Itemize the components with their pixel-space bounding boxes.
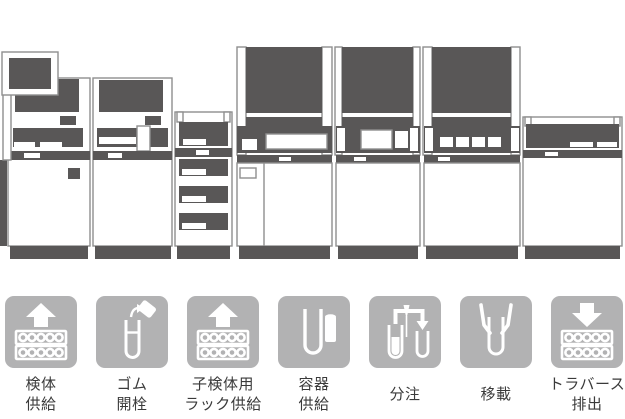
legend-item-child-rack-supply: 子検体用 ラック供給: [187, 296, 259, 417]
machine-line-illustration: [0, 0, 625, 270]
dispense-icon: [369, 296, 441, 368]
icon-label: 子検体用 ラック供給: [184, 373, 262, 417]
module-processor-1: [237, 47, 332, 259]
monitor-stand: [3, 93, 11, 160]
module-decapper: [93, 78, 172, 259]
arrow-up-racks-icon: [5, 296, 77, 368]
module-processor-3: [423, 47, 520, 259]
gripper-tube-icon: [460, 296, 532, 368]
module-rack-supply: [175, 112, 232, 259]
icon-tile: [369, 296, 441, 368]
brochure-diagram: 検体 供給 ゴム 開栓: [0, 0, 625, 419]
legend-item-rubber-decapping: ゴム 開栓: [96, 296, 168, 417]
status-screen: [246, 47, 322, 113]
legend-item-traverse-discharge: トラバース 排出: [551, 296, 623, 417]
icon-tile: [460, 296, 532, 368]
monitor-screen: [9, 58, 51, 89]
icon-label: 容器 供給: [298, 373, 329, 417]
arrow-down-racks-icon: [551, 296, 623, 368]
icon-label: 移載: [480, 373, 511, 417]
icon-tile: [278, 296, 350, 368]
module-processor-2: [335, 47, 420, 259]
module-traverse-output: [523, 117, 622, 259]
tube-decap-icon: [96, 296, 168, 368]
legend-item-transfer: 移載: [460, 296, 532, 417]
module-sample-supply: [0, 52, 90, 259]
icon-tile: [96, 296, 168, 368]
icon-tile: [187, 296, 259, 368]
icon-label: 検体 供給: [25, 373, 56, 417]
status-screen: [432, 47, 511, 113]
icon-label: トラバース 排出: [549, 373, 625, 417]
tube-container-icon: [278, 296, 350, 368]
status-screen: [342, 47, 413, 113]
process-legend: 検体 供給 ゴム 開栓: [5, 296, 623, 417]
legend-item-container-supply: 容器 供給: [278, 296, 350, 417]
icon-label: 分注: [389, 373, 420, 417]
legend-item-dispensing: 分注: [369, 296, 441, 417]
icon-label: ゴム 開栓: [116, 373, 147, 417]
arrow-up-racks-icon: [187, 296, 259, 368]
legend-item-specimen-supply: 検体 供給: [5, 296, 77, 417]
icon-tile: [5, 296, 77, 368]
icon-tile: [551, 296, 623, 368]
